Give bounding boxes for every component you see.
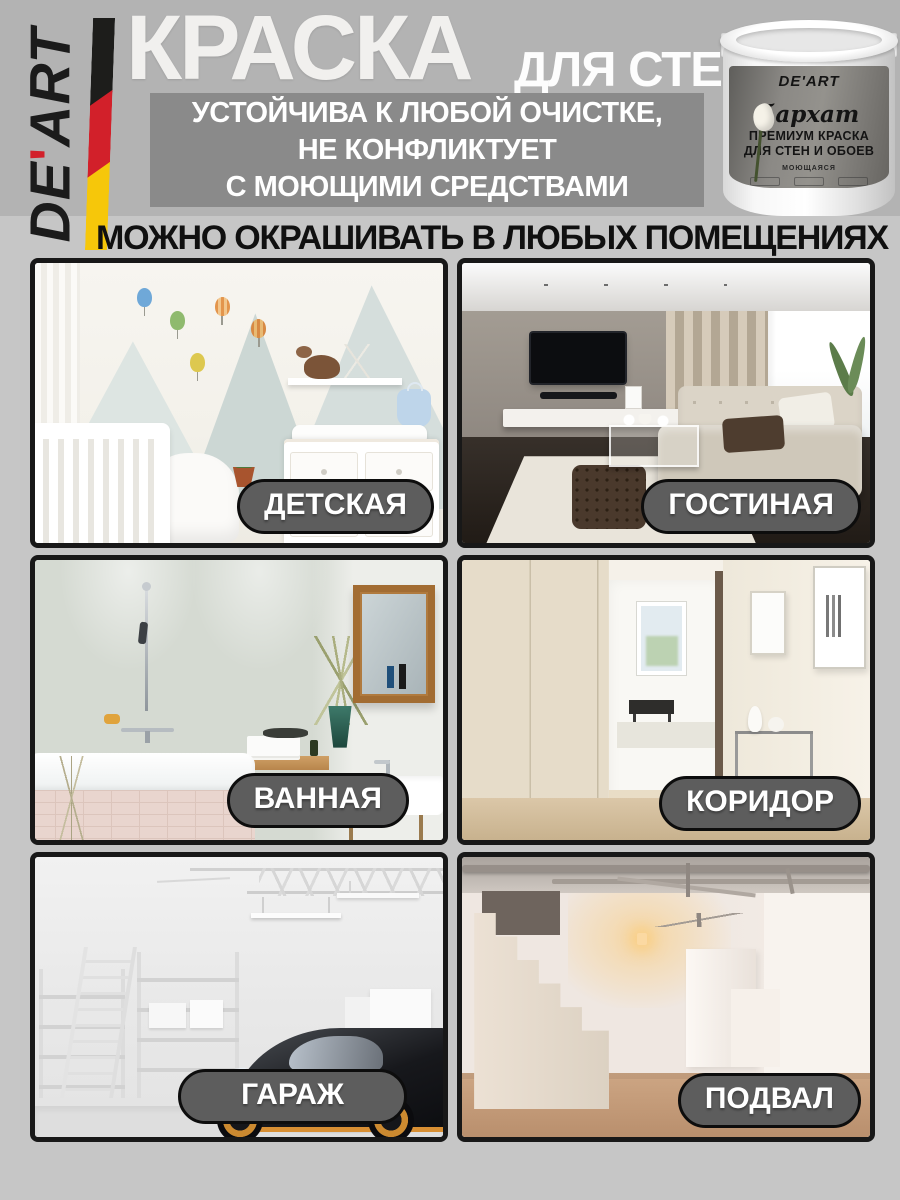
ceiling-pipe [686, 863, 690, 897]
room-label-garage: ГАРАЖ [178, 1069, 407, 1124]
soundbar [540, 392, 618, 399]
soap-dish [263, 728, 308, 738]
room-label-living-room: ГОСТИНАЯ [641, 479, 861, 534]
hanging-bar [157, 877, 230, 883]
room-photo-corridor: КОРИДОР [457, 555, 875, 845]
can-brand: DE'ART [729, 73, 889, 90]
bath-mixer-tap [121, 728, 174, 732]
can-note: МОЮЩАЯСЯ [729, 165, 889, 172]
wall-light-spot [59, 560, 198, 672]
white-flowers [621, 414, 675, 426]
can-lid-inner [736, 28, 882, 52]
storage-box [190, 1000, 223, 1028]
pipe-bracket [646, 913, 752, 927]
glass-coffee-table [609, 425, 699, 467]
promo-poster: DE'ART КРАСКА ДЛЯ СТЕН УСТОЙЧИВА К ЛЮБОЙ… [0, 0, 900, 1200]
can-label: DE'ART бархат ПРЕМИУМ КРАСКА ДЛЯ СТЕН И … [729, 66, 889, 188]
picture-frame-small [750, 591, 787, 655]
bench [629, 700, 674, 714]
fluorescent-lamp [251, 913, 341, 918]
paint-can: DE'ART бархат ПРЕМИУМ КРАСКА ДЛЯ СТЕН И … [720, 20, 898, 216]
brand-logo-apostrophe: ' [19, 147, 83, 162]
photo-frame [625, 386, 641, 408]
room-label-nursery: ДЕТСКАЯ [237, 479, 434, 534]
truss-diagonals [259, 868, 443, 896]
section-headline: МОЖНО ОКРАШИВАТЬ В ЛЮБЫХ ПОМЕЩЕНИЯХ [96, 219, 886, 258]
baby-crib [30, 423, 170, 548]
benefit-line-3: С МОЮЩИМИ СРЕДСТВАМИ [150, 169, 704, 206]
fluorescent-lamp [337, 893, 419, 898]
shower-rail [145, 588, 148, 711]
brand-logo: DE'ART [18, 23, 88, 248]
can-line-2: ДЛЯ СТЕН И ОБОЕВ [729, 144, 889, 159]
room-photo-living-room: ГОСТИНАЯ [457, 258, 875, 548]
room-photo-basement: ПОДВАЛ [457, 852, 875, 1142]
benefit-line-2: НЕ КОНФЛИКТУЕТ [150, 132, 704, 169]
product-title: КРАСКА [126, 2, 471, 94]
ceiling-pipe [462, 865, 870, 872]
balloon-mobile [170, 311, 185, 330]
basement-ceiling [462, 857, 870, 893]
tufted-ottoman [572, 465, 645, 529]
can-feature-icons [729, 177, 889, 186]
brown-pillow [722, 415, 785, 453]
room-photo-garage: ГАРАЖ [30, 852, 448, 1142]
wooden-mirror-cabinet [353, 585, 435, 703]
baby-onesie [397, 389, 431, 427]
balloon-mobile [190, 353, 205, 372]
room-photo-nursery: ДЕТСКАЯ [30, 258, 448, 548]
white-vase-round [768, 717, 784, 732]
mirror [362, 594, 426, 694]
benefit-line-1: УСТОЙЧИВА К ЛЮБОЙ ОЧИСТКЕ, [150, 95, 704, 132]
can-line-1: ПРЕМИУМ КРАСКА [729, 129, 889, 144]
balloon-mobile [251, 319, 266, 338]
back-window [637, 602, 686, 675]
benefit-box: УСТОЙЧИВА К ЛЮБОЙ ОЧИСТКЕ, НЕ КОНФЛИКТУЕ… [150, 93, 704, 207]
cosmetic-bottle [310, 740, 318, 756]
room-label-basement: ПОДВАЛ [678, 1073, 861, 1128]
room-label-bathroom: ВАННАЯ [227, 773, 409, 828]
room-label-corridor: КОРИДОР [659, 776, 861, 831]
ceiling [462, 263, 870, 311]
partition-box [731, 989, 780, 1067]
balloon-mobile [215, 297, 230, 316]
dried-plant [39, 756, 104, 840]
room-photo-bathroom: ВАННАЯ [30, 555, 448, 845]
wall-lamp [637, 933, 647, 945]
brand-logo-prefix: DE [19, 161, 83, 242]
green-vase [325, 706, 356, 748]
shelf-bottle-black [399, 664, 406, 689]
shelf-bottle-blue [387, 666, 394, 688]
towel-stack [247, 736, 300, 756]
white-vase-tall [748, 706, 762, 732]
tv-screen [531, 333, 625, 383]
moose-plush-toy [304, 355, 340, 379]
can-feature-icon-2 [794, 177, 824, 186]
brand-logo-suffix: ART [19, 28, 83, 147]
storage-box [149, 1003, 186, 1028]
console-table [735, 731, 813, 779]
balloon-mobile [137, 288, 152, 307]
rooms-grid: ДЕТСКАЯ [30, 258, 875, 1142]
can-feature-icon-3 [838, 177, 868, 186]
ceiling-pipe [552, 879, 870, 884]
back-rug [617, 722, 715, 747]
wall-shelf [288, 378, 402, 385]
sponge [104, 714, 120, 724]
picture-frame-large [813, 566, 866, 670]
decor-arrows [337, 344, 377, 378]
